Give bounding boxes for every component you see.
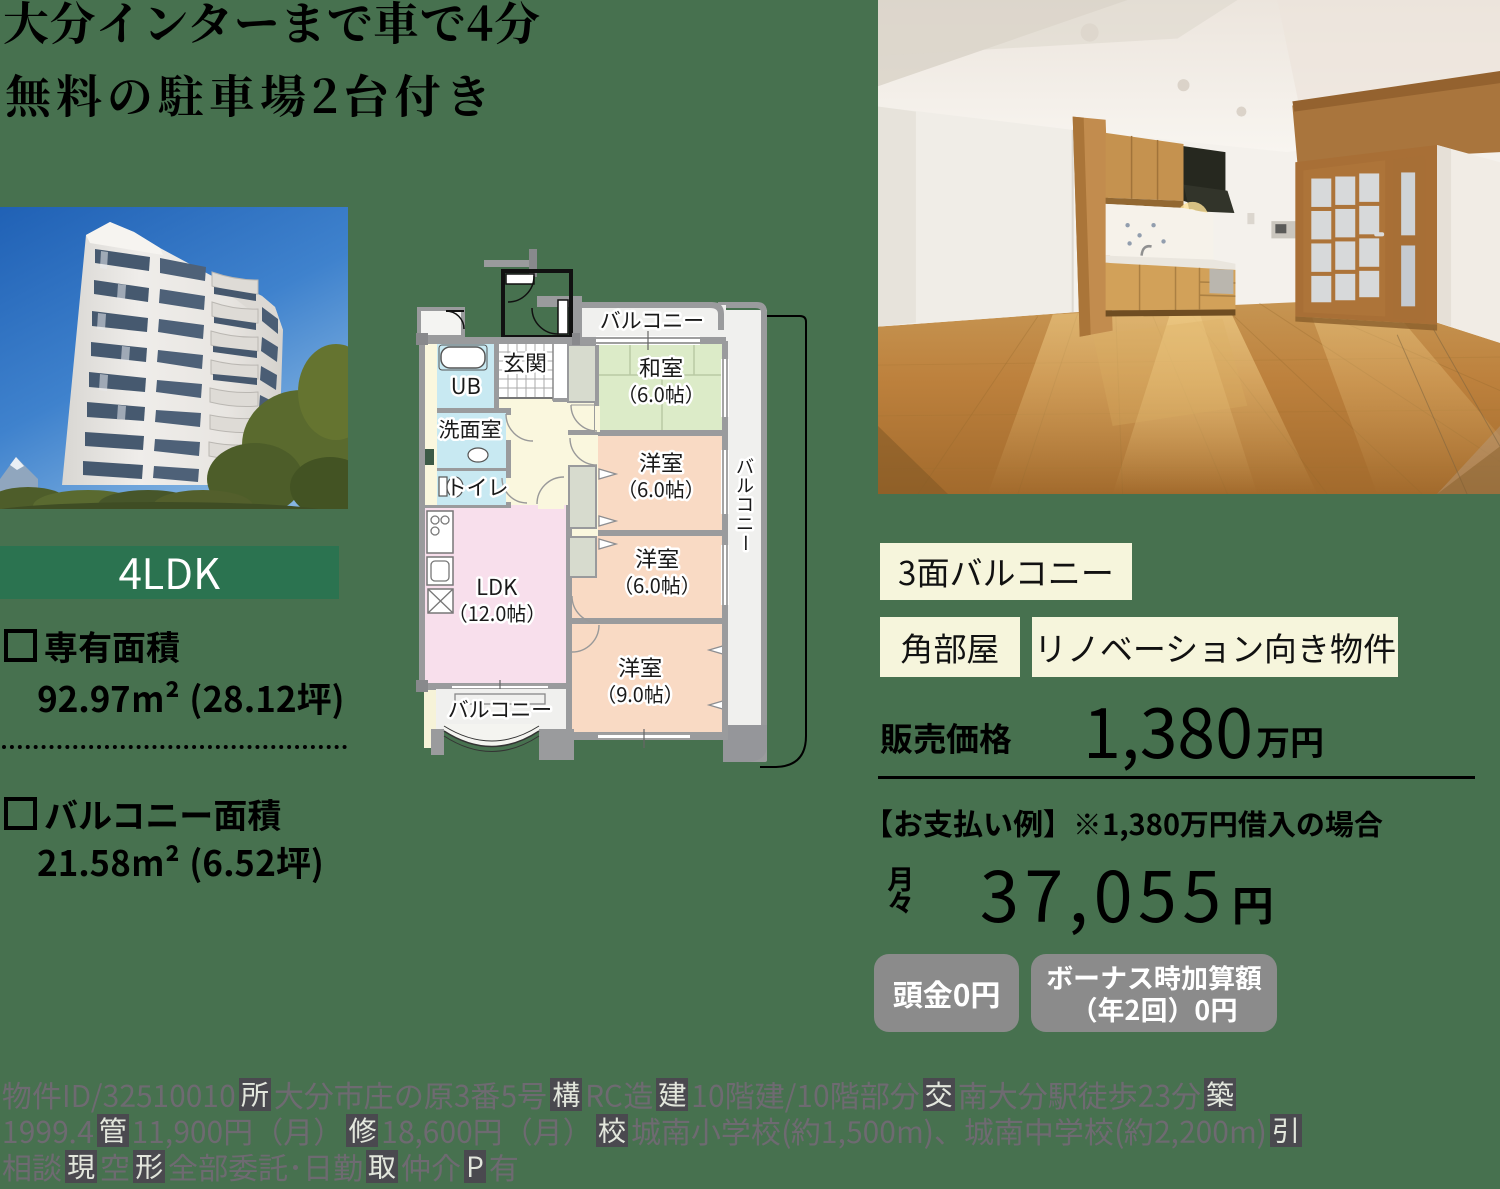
svg-text:洗面室: 洗面室 xyxy=(439,414,502,444)
svg-text:UB: UB xyxy=(451,369,481,401)
svg-text:玄関: 玄関 xyxy=(503,346,547,378)
svg-text:ー: ー xyxy=(733,534,759,552)
svg-text:バルコニー: バルコニー xyxy=(448,694,553,724)
svg-text:バルコニー: バルコニー xyxy=(600,305,705,335)
svg-text:ニ: ニ xyxy=(736,510,754,536)
svg-text:（12.0帖）: （12.0帖） xyxy=(448,598,547,627)
svg-text:（6.0帖）: （6.0帖） xyxy=(613,570,701,599)
svg-text:（6.0帖）: （6.0帖） xyxy=(617,474,705,503)
svg-text:（6.0帖）: （6.0帖） xyxy=(617,379,705,408)
svg-text:トイレ: トイレ xyxy=(446,472,509,502)
svg-text:（9.0帖）: （9.0帖） xyxy=(596,679,684,708)
